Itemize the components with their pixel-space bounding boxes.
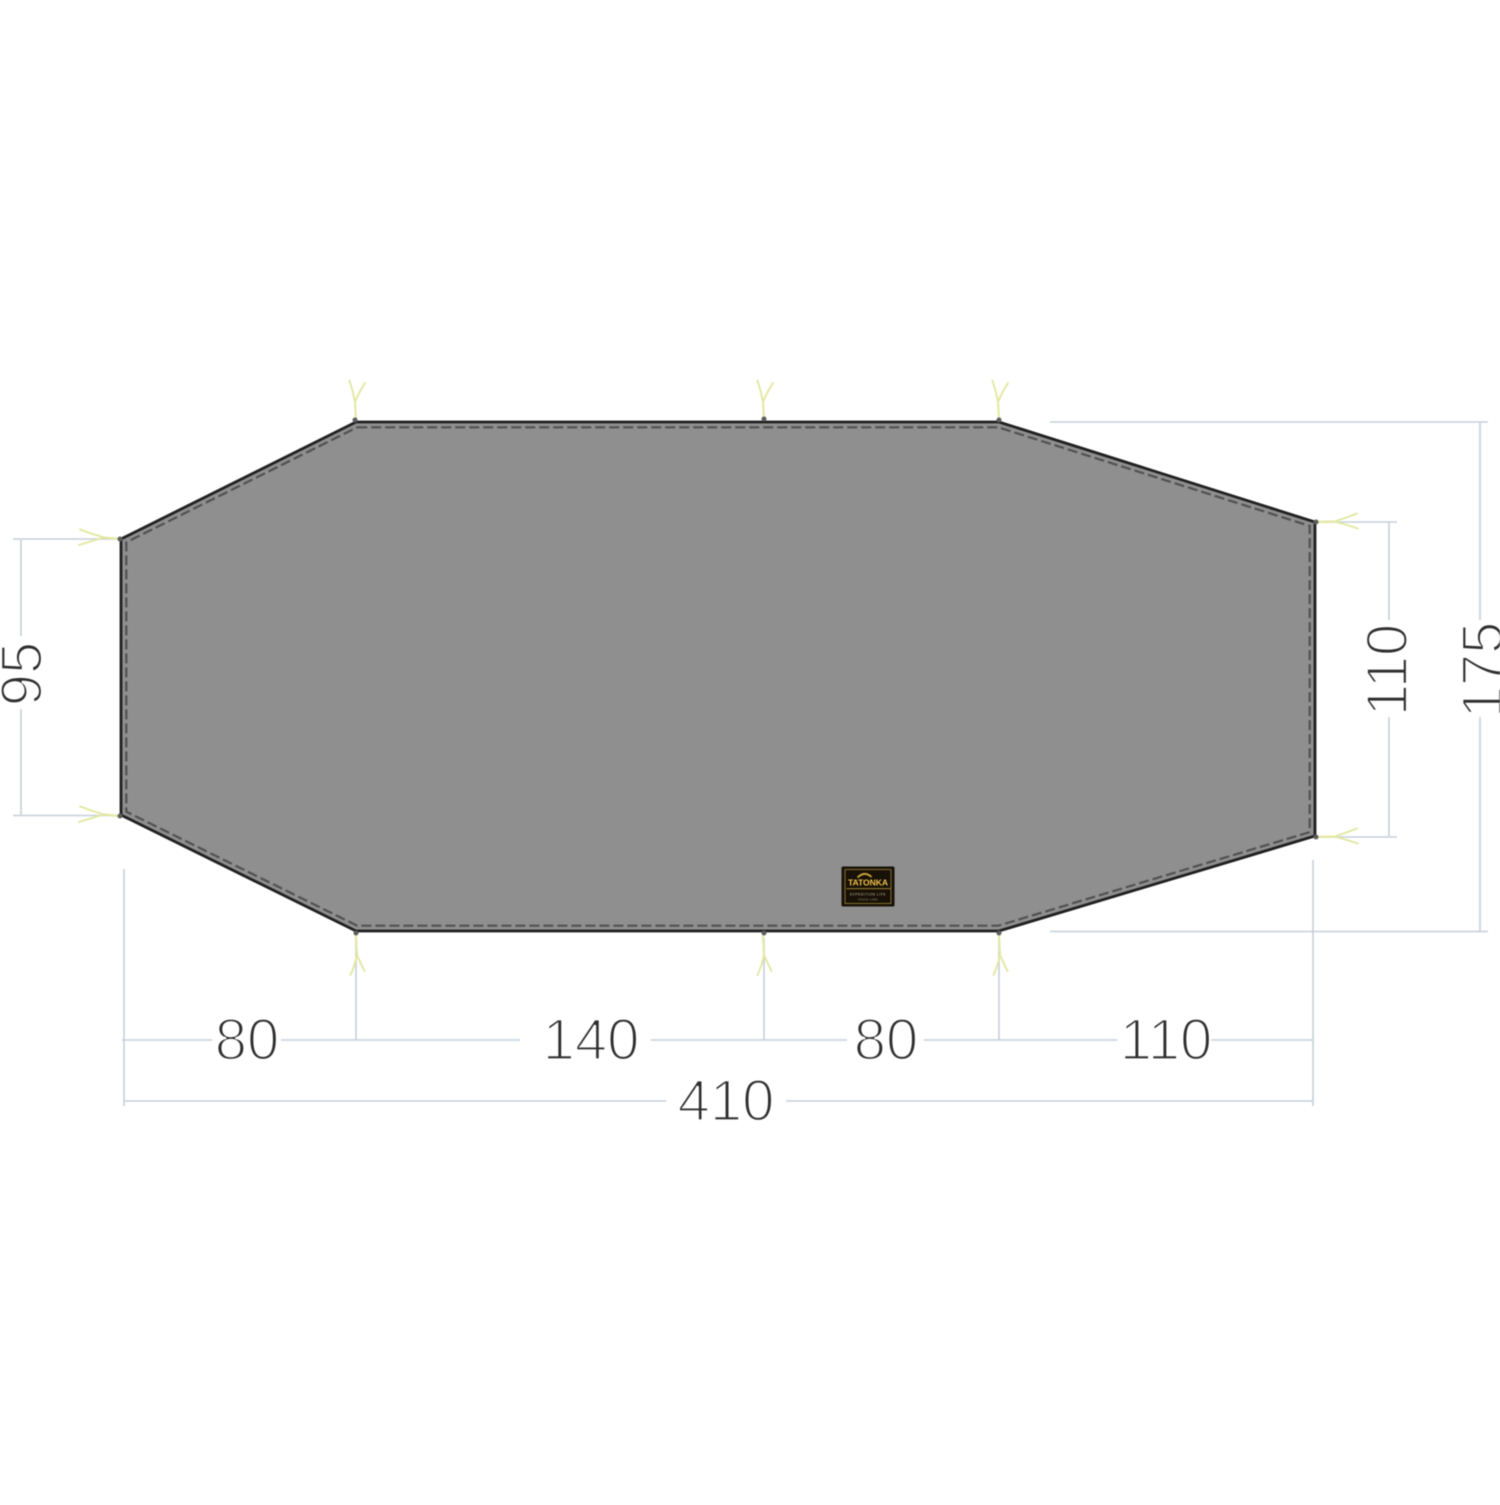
svg-text:410: 410: [678, 1069, 775, 1134]
svg-text:SINCE 1980: SINCE 1980: [858, 897, 878, 901]
svg-text:140: 140: [543, 1008, 640, 1073]
svg-text:95: 95: [0, 642, 55, 707]
svg-text:80: 80: [215, 1008, 280, 1073]
svg-text:110: 110: [1355, 624, 1420, 716]
svg-text:175: 175: [1451, 622, 1500, 719]
svg-text:110: 110: [1120, 1008, 1212, 1073]
svg-text:EXPEDITION LIFE: EXPEDITION LIFE: [850, 892, 886, 896]
svg-text:80: 80: [854, 1008, 919, 1073]
svg-text:TATONKA: TATONKA: [848, 878, 888, 888]
